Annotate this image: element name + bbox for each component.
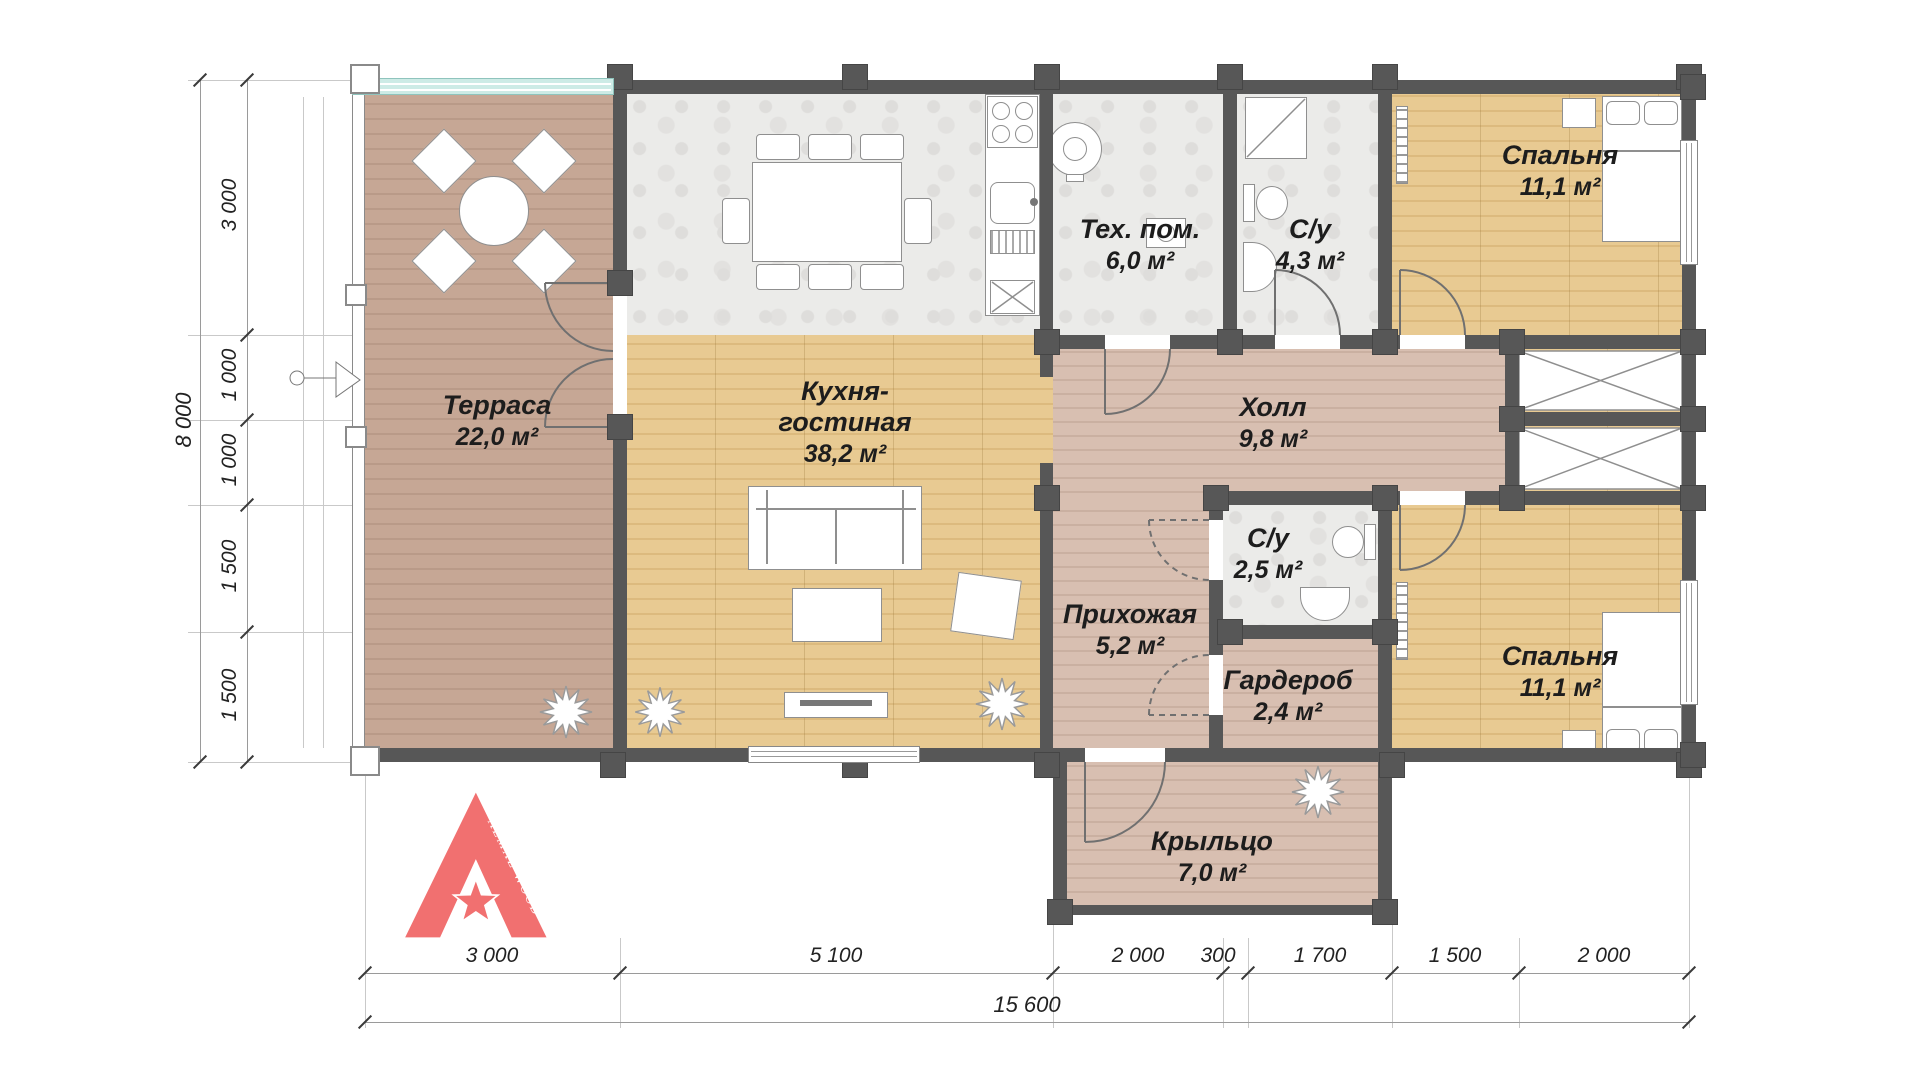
bedroom-top-window [1680,140,1698,265]
room-area: 22,0 м² [397,421,597,454]
wall-tech-bath [1223,94,1237,335]
dim-left-segment: 1 500 [218,640,242,750]
dim-bottom-segment: 3 000 [432,944,552,968]
shower-diagonal [1247,99,1305,157]
room-name: Кухня-гостиная [762,376,928,438]
room-name: Прихожая [1030,599,1230,630]
dim-bottom-segment: 5 100 [776,944,896,968]
wall-bottom [920,748,1085,762]
room-area: 7,0 м² [1112,857,1312,890]
room-label-terrace: Терраса 22,0 м² [397,390,597,454]
plant [635,687,684,736]
wall-bath-bedroom [1378,94,1392,335]
room-label-kitchen-living: Кухня-гостиная 38,2 м² [762,376,928,471]
log-end [1499,406,1525,432]
room-name: Терраса [397,390,597,421]
wall-terrace-divider [613,427,627,748]
wall-top [607,80,1696,94]
log-end [607,270,633,296]
bedroom-bottom-window [1680,580,1698,705]
plant [540,686,592,738]
room-name: Холл [1173,392,1373,423]
room-area: 11,1 м² [1460,672,1660,705]
log-end [1680,74,1706,100]
wall-terrace-divider [613,80,627,283]
living-window [748,746,920,763]
closet-bottom [1519,428,1682,489]
room-name: Спальня [1460,641,1660,672]
floor-plan: Терраса 22,0 м² Кухня-гостиная 38,2 м² Т… [0,0,1920,1080]
wall-bottom [1165,748,1696,762]
wall-kitchen-tech [1040,94,1053,335]
log-end [1372,64,1398,90]
dim-bottom-overall: 15 600 [957,992,1097,1018]
wall-porch-bottom [1053,905,1392,915]
room-area: 6,0 м² [1058,245,1222,278]
room-name: С/у [1198,523,1338,554]
log-end [1034,752,1060,778]
dim-left-segment: 3 000 [218,150,242,260]
room-label-hall: Холл 9,8 м² [1173,392,1373,456]
wall-closet-divider [1519,412,1682,426]
wall-porch-right [1378,762,1392,912]
dim-bottom-segment: 1 500 [1395,944,1515,968]
terrace-post [350,746,380,776]
log-end [1680,329,1706,355]
dim-bottom-segment: 2 000 [1544,944,1664,968]
plant [1292,766,1344,818]
log-end [1372,329,1398,355]
log-end [1372,485,1398,511]
log-end [607,414,633,440]
dim-bottom-segment: 1 700 [1260,944,1380,968]
terrace-glazing [352,78,614,95]
room-label-bathroom-big: С/у 4,3 м² [1240,214,1380,278]
log-end [1680,742,1706,768]
section-marker [290,362,360,397]
logo-triangle [405,793,546,938]
room-label-wardrobe: Гардероб 2,4 м² [1188,665,1388,729]
terrace-post [345,426,367,448]
log-end [1047,899,1073,925]
dim-left-segment: 1 500 [218,511,242,621]
log-end [1034,329,1060,355]
plant [976,678,1028,730]
room-name: Спальня [1460,140,1660,171]
log-end [1217,329,1243,355]
room-area: 38,2 м² [762,438,928,471]
dim-bottom-segment: 300 [1168,944,1268,968]
log-end [1499,485,1525,511]
terrace-post [345,284,367,306]
closet-top [1519,351,1682,410]
room-label-bedroom-top: Спальня 11,1 м² [1460,140,1660,204]
room-label-tech: Тех. пом. 6,0 м² [1058,214,1222,278]
room-name: Тех. пом. [1058,214,1222,245]
wall-bath-wardrobe [1223,625,1378,639]
log-end [1680,406,1706,432]
log-end [842,64,868,90]
log-end [1379,752,1405,778]
wall-porch-left [1053,762,1067,912]
room-label-bathroom-small: С/у 2,5 м² [1198,523,1338,587]
wall-bottom [352,748,748,762]
almaz-wood-logo: ALMAZ WOOD [396,786,564,944]
dim-left-overall: 8 000 [171,365,197,475]
dishwasher-x [992,282,1033,312]
room-area: 4,3 м² [1240,245,1380,278]
log-end [1372,899,1398,925]
log-end [1372,619,1398,645]
room-name: Гардероб [1188,665,1388,696]
room-label-porch: Крыльцо 7,0 м² [1112,826,1312,890]
room-area: 11,1 м² [1460,171,1660,204]
terrace-post [350,64,380,94]
room-label-bedroom-bottom: Спальня 11,1 м² [1460,641,1660,705]
room-area: 5,2 м² [1030,630,1230,663]
room-area: 9,8 м² [1173,423,1373,456]
log-end [1499,329,1525,355]
log-end [1034,64,1060,90]
log-end [1034,485,1060,511]
room-name: Крыльцо [1112,826,1312,857]
log-end [1217,64,1243,90]
log-end [600,752,626,778]
room-area: 2,4 м² [1188,696,1388,729]
room-name: С/у [1240,214,1380,245]
log-end [1680,485,1706,511]
room-area: 2,5 м² [1198,554,1338,587]
room-label-entry: Прихожая 5,2 м² [1030,599,1230,663]
log-end [1203,485,1229,511]
dim-left-segment: 1 000 [218,405,242,515]
